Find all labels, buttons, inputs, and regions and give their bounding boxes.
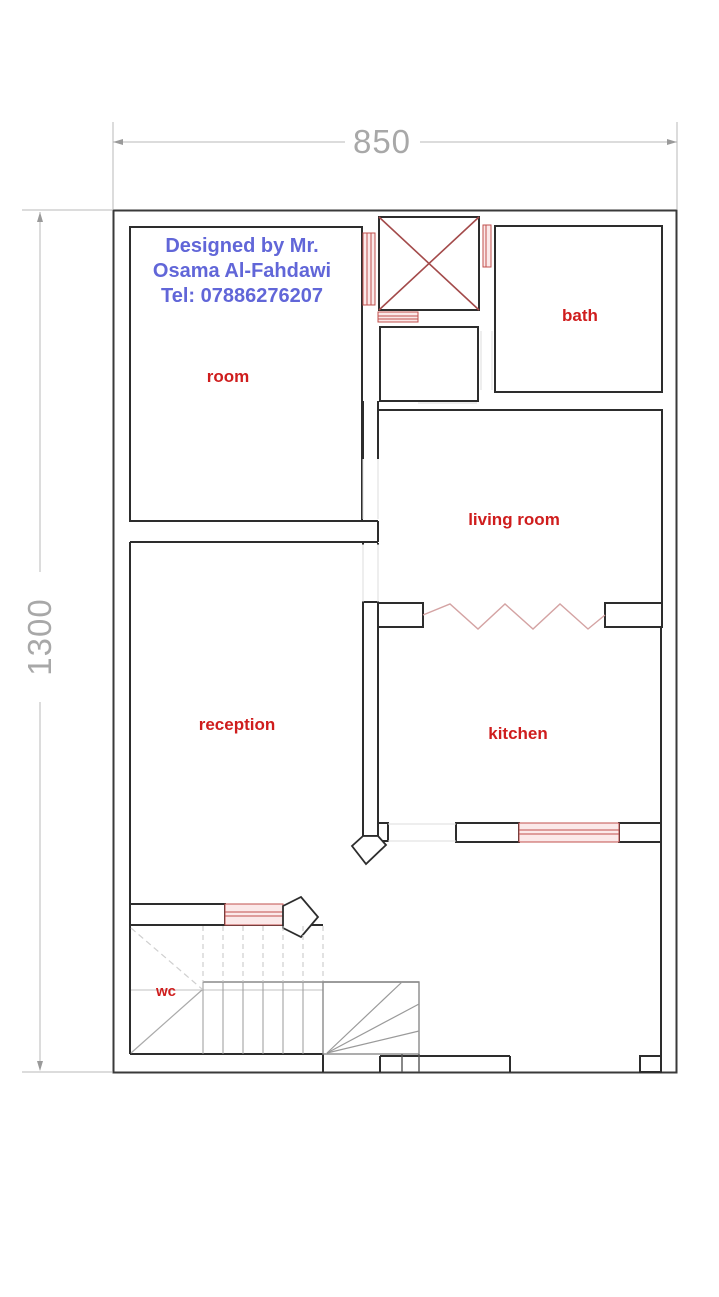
shaft-x-box: [379, 217, 479, 310]
dimension-lines: [22, 122, 677, 1072]
wc-direction-dashed: [131, 928, 202, 989]
designer-note-line3: Tel: 07886276207: [138, 284, 346, 309]
dimension-height-label: 1300: [21, 581, 59, 693]
arrow-down-kitchen-entry: [352, 836, 386, 864]
zigzag-partition: [423, 604, 605, 629]
door-openings: [363, 331, 492, 841]
window-shaft-right: [483, 225, 491, 267]
window-lobby: [378, 312, 418, 322]
window-kitchen: [519, 823, 619, 842]
kitchen-left-wall: [363, 602, 378, 836]
room-walls: [130, 226, 662, 1072]
room-label-reception: reception: [177, 715, 297, 735]
room-label-living-room: living room: [454, 510, 574, 530]
lobby-box: [380, 327, 478, 401]
floor-plan-drawing: [0, 0, 719, 1297]
dimension-arrows: [37, 139, 677, 1071]
room-label-kitchen: kitchen: [458, 724, 578, 744]
room-label-room: room: [188, 367, 268, 387]
outer-wall: [114, 211, 677, 1073]
window-shaft-left: [363, 233, 375, 305]
reception-bottom-wall: [130, 904, 225, 925]
door-arrows: [283, 836, 386, 937]
designer-note-line2: Osama Al-Fahdawi: [138, 259, 346, 284]
bottom-wall-block: [640, 1056, 661, 1072]
window-reception: [225, 904, 283, 925]
dimension-width-label: 850: [342, 123, 422, 161]
arrow-right-stair-entry: [283, 897, 318, 937]
living-stub-left: [378, 603, 423, 627]
kitchen-sill-right: [619, 823, 661, 842]
living-stub-right: [605, 603, 662, 627]
kitchen-sill-left: [456, 823, 519, 842]
room-label-bath: bath: [540, 306, 620, 326]
room-label-wc: wc: [136, 982, 196, 1002]
floor-plan-page: { "dimensions": { "width": "850", "heigh…: [0, 0, 719, 1297]
designer-note-line1: Designed by Mr.: [138, 234, 346, 259]
windows: [225, 225, 619, 925]
designer-note: Designed by Mr. Osama Al-Fahdawi Tel: 07…: [138, 234, 346, 309]
